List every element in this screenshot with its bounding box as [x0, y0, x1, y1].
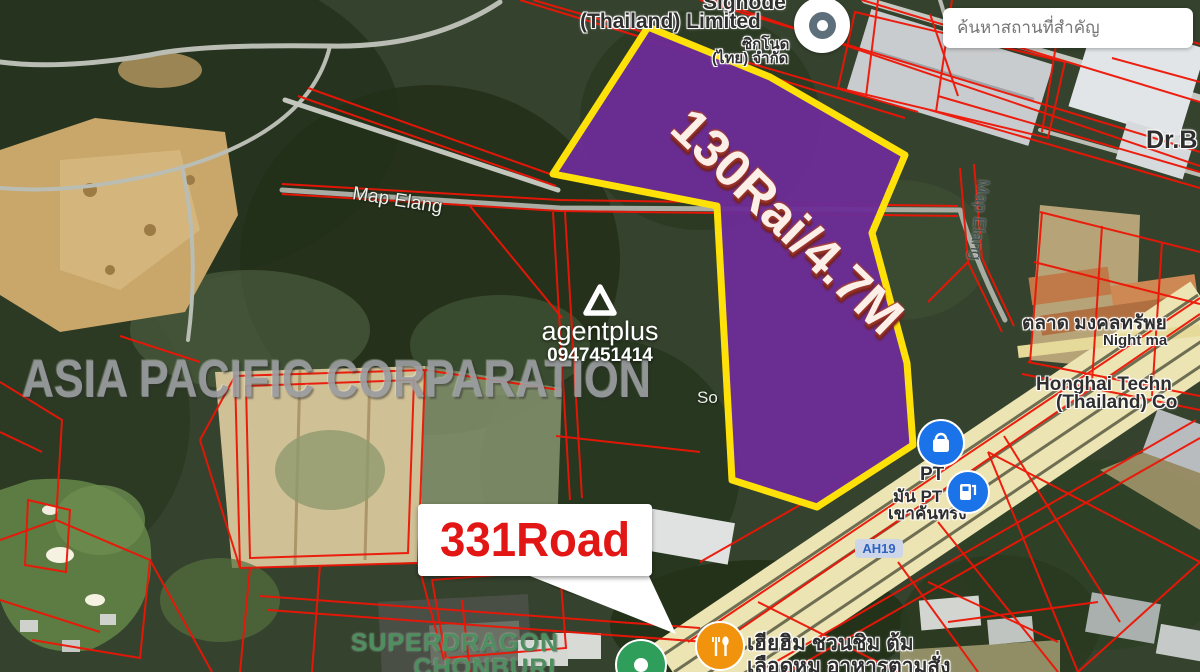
agency-phone: 0947451414 — [520, 346, 680, 366]
road-331-callout: 331Road — [418, 504, 652, 576]
label-dr-b: Dr.B — [1146, 126, 1197, 155]
label-honghai-line2: (Thailand) Co — [1056, 392, 1177, 414]
label-soi-partial: So — [697, 388, 718, 408]
label-superdragon-line2: CHONBURI — [395, 654, 575, 672]
label-signode-thai2: (ไทย) จำกัด — [712, 46, 788, 70]
label-restaurant-line2: เลือดหมู อาหารตามสั่ง — [747, 650, 950, 672]
label-night-market: Night ma — [1103, 332, 1167, 349]
agency-name: agentplus — [520, 316, 680, 346]
callout-arrow — [500, 572, 700, 642]
fuel-station-marker-icon[interactable] — [946, 470, 990, 514]
ah19-route-shield: AH19 — [855, 539, 903, 558]
search-input[interactable] — [943, 8, 1193, 48]
search-box — [943, 8, 1193, 48]
restaurant-marker-icon[interactable] — [695, 621, 745, 671]
agentplus-triangle-icon — [583, 284, 617, 316]
label-signode-line2: (Thailand) Limited — [580, 10, 761, 34]
shopping-bag-marker-icon[interactable] — [917, 419, 965, 467]
satellite-map-view: ASIA PACIFIC CORPARATION 130Rai/4.7M age… — [0, 0, 1200, 672]
agency-logo: agentplus 0947451414 — [520, 284, 680, 366]
